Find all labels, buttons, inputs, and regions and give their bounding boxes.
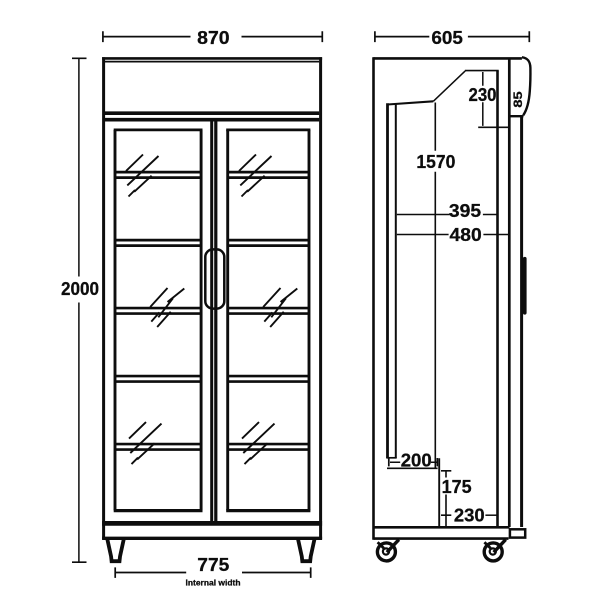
svg-text:85: 85 <box>511 91 525 108</box>
svg-text:605: 605 <box>431 27 463 48</box>
svg-text:395: 395 <box>449 200 481 221</box>
svg-text:230: 230 <box>454 504 485 525</box>
svg-text:480: 480 <box>450 224 482 245</box>
svg-text:Internal width: Internal width <box>186 577 241 587</box>
svg-text:1570: 1570 <box>416 151 455 172</box>
svg-text:175: 175 <box>442 476 472 497</box>
svg-text:775: 775 <box>197 554 229 575</box>
svg-text:2000: 2000 <box>61 278 99 299</box>
svg-text:200: 200 <box>401 450 432 471</box>
svg-text:870: 870 <box>197 27 229 48</box>
svg-text:230: 230 <box>469 84 497 105</box>
